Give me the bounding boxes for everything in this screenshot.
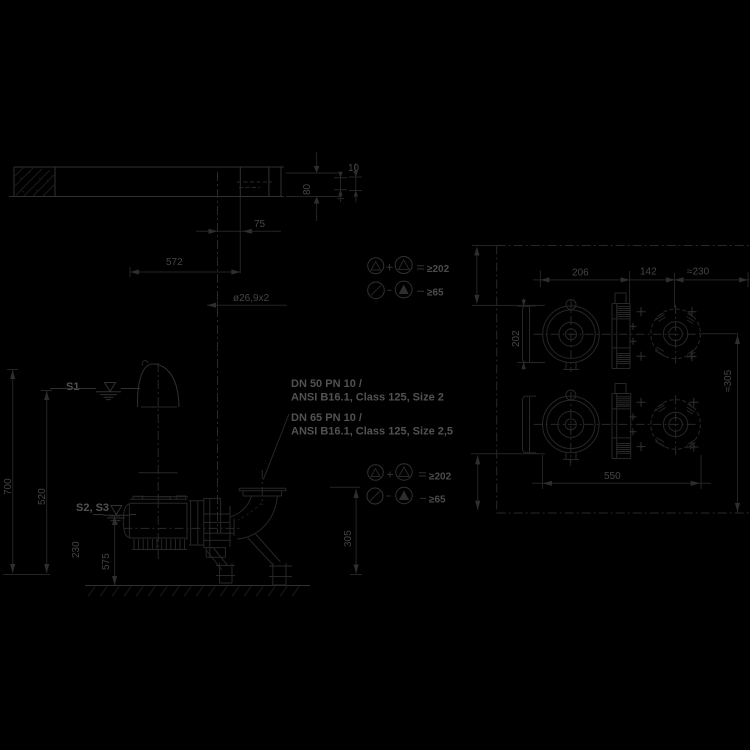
svg-text:75: 75: [254, 219, 266, 230]
svg-text:DN 50 PN 10 /: DN 50 PN 10 /: [291, 378, 362, 390]
svg-text:206: 206: [572, 268, 589, 279]
svg-text:≥65: ≥65: [429, 495, 446, 506]
svg-text:ANSI B16.1, Class 125, Size 2: ANSI B16.1, Class 125, Size 2: [291, 392, 444, 404]
svg-text:700: 700: [3, 478, 14, 495]
svg-text:575: 575: [101, 553, 112, 570]
svg-text:520: 520: [37, 488, 48, 505]
svg-text:10: 10: [348, 163, 360, 174]
svg-text:202: 202: [511, 330, 522, 347]
svg-text:≈230: ≈230: [687, 267, 710, 278]
svg-text:305: 305: [343, 530, 354, 547]
svg-text:ANSI B16.1, Class 125, Size 2,: ANSI B16.1, Class 125, Size 2,5: [291, 426, 453, 438]
svg-text:142: 142: [640, 267, 657, 278]
svg-text:≈305: ≈305: [723, 369, 734, 392]
svg-text:S2, S3: S2, S3: [76, 502, 109, 514]
svg-text:≥65: ≥65: [427, 288, 444, 299]
svg-text:DN 65 PN 10 /: DN 65 PN 10 /: [291, 412, 362, 424]
svg-text:550: 550: [604, 471, 621, 482]
svg-text:80: 80: [302, 183, 313, 195]
svg-text:ø26,9x2: ø26,9x2: [233, 293, 270, 304]
svg-text:572: 572: [166, 257, 183, 268]
svg-text:≥202: ≥202: [429, 472, 452, 483]
svg-text:230: 230: [71, 541, 82, 558]
svg-text:≥202: ≥202: [427, 264, 450, 275]
svg-text:S1: S1: [66, 381, 79, 393]
